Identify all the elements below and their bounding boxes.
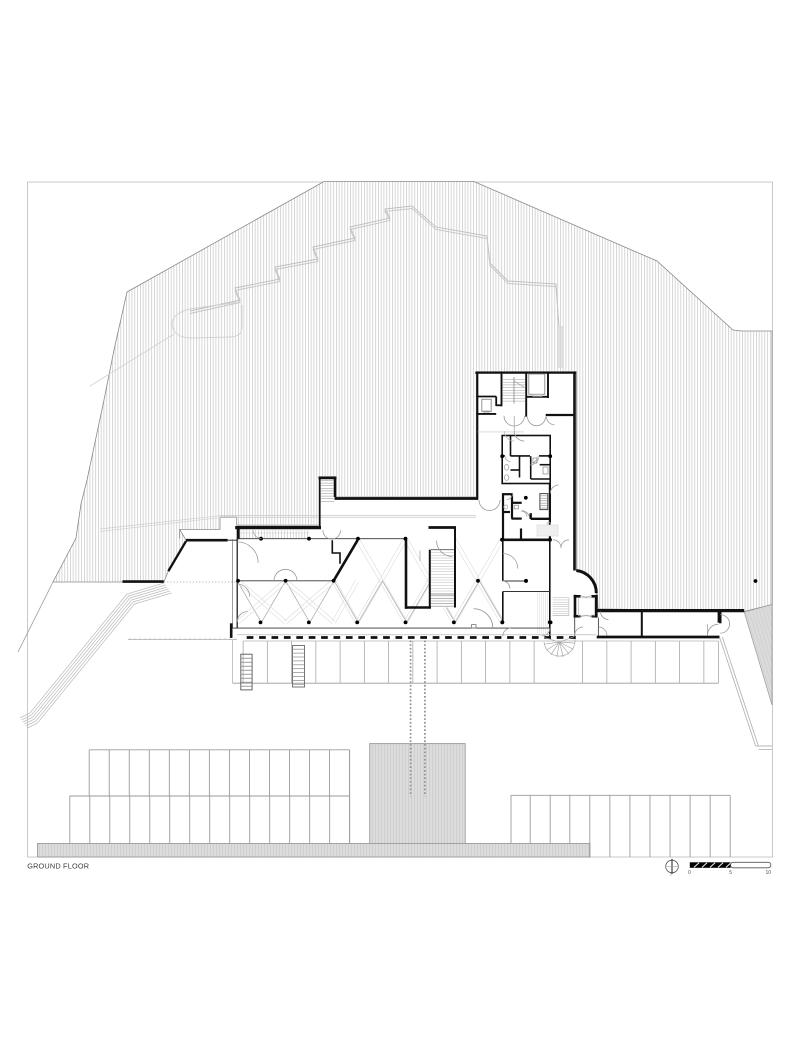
svg-text:0: 0	[688, 870, 691, 876]
svg-text:GROUND FLOOR: GROUND FLOOR	[27, 862, 89, 871]
svg-text:10: 10	[766, 870, 772, 876]
svg-text:5: 5	[729, 870, 732, 876]
